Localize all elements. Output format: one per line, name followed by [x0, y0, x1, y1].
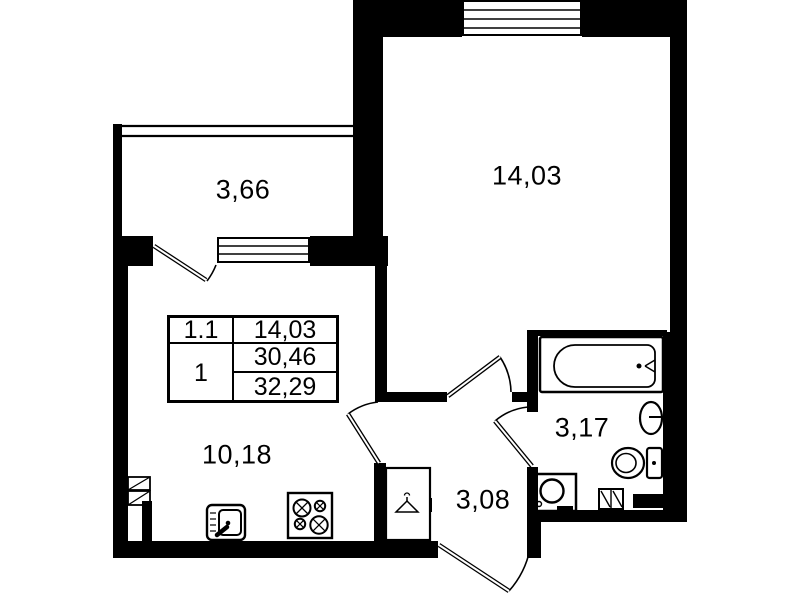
door-swing-arc — [500, 357, 511, 392]
door-main-room — [348, 402, 379, 463]
door-balcony — [154, 246, 216, 281]
kitchen-sink-icon — [207, 505, 245, 540]
wall — [527, 330, 667, 336]
wall — [375, 392, 447, 402]
walls — [113, 0, 687, 558]
legend-room-area: 14,03 — [234, 318, 336, 344]
floor-plan-drawing — [0, 0, 799, 600]
area-label-bathroom: 3,17 — [555, 413, 610, 444]
door-living-room — [448, 357, 511, 396]
wall — [310, 236, 388, 266]
legend-living-area: 30,46 — [234, 344, 336, 373]
wall — [670, 0, 687, 335]
wall — [113, 124, 122, 236]
door-entrance — [439, 545, 530, 591]
window-icon-living-room — [463, 1, 581, 35]
floor-plan: 3,66 14,03 10,18 3,08 3,17 1.1 14,03 1 3… — [0, 0, 799, 600]
area-label-hallway: 3,08 — [456, 485, 511, 516]
duct-pillar — [142, 501, 152, 541]
washbasin-icon — [640, 402, 664, 434]
vent-shaft-icon-kitchen — [128, 477, 150, 505]
washing-machine-icon — [533, 474, 576, 511]
bathtub-icon — [540, 337, 663, 392]
wall — [374, 463, 386, 541]
duct-block — [633, 494, 664, 508]
door-bathroom — [495, 407, 532, 466]
door-swing-arc — [509, 549, 530, 591]
wall — [527, 331, 538, 412]
window-icon-balcony-rail — [113, 126, 353, 136]
legend-unit-number: 1.1 — [170, 318, 234, 344]
wall — [113, 236, 153, 266]
wall — [375, 265, 387, 402]
area-label-balcony: 3,66 — [216, 175, 271, 206]
door-swing-arc — [495, 407, 528, 421]
wall — [113, 541, 438, 558]
hanger-icon — [396, 493, 418, 512]
vent-shaft-icon-bathroom — [599, 489, 623, 509]
legend-table: 1.1 14,03 1 30,46 32,29 — [167, 315, 339, 403]
stove-icon — [288, 493, 332, 538]
legend-total-area: 32,29 — [234, 373, 336, 402]
area-label-living-room: 14,03 — [492, 161, 562, 192]
wardrobe — [386, 468, 432, 540]
wall — [353, 0, 383, 265]
legend-apartment-number: 1 — [170, 344, 234, 402]
door-swing-arc — [207, 265, 216, 281]
area-label-kitchen-living-room: 10,18 — [202, 440, 272, 471]
window-icon-kitchen — [218, 238, 309, 262]
toilet-icon — [612, 448, 662, 478]
door-swing-arc — [348, 402, 378, 414]
wall — [663, 332, 687, 522]
wall — [113, 236, 128, 558]
wall — [512, 392, 528, 402]
